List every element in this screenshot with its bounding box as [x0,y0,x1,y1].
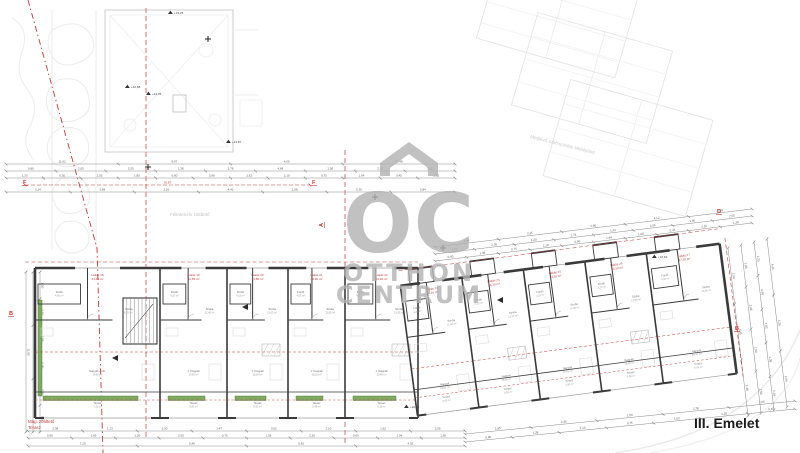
shaft-hatch-line [268,344,274,356]
room-area: 18,90 m² [253,374,263,377]
dim-number: 6,07 [171,160,177,164]
shaft-hatch-line [392,344,398,356]
room-name: Terasz [190,401,199,405]
room-name: Terasz [378,401,387,405]
room-name: Fürdő [297,290,305,294]
dim-number: 1,94 [606,235,613,240]
partition-wall [469,324,507,329]
room-area: 5,60 m² [253,406,262,409]
unit-red-line [411,361,472,369]
dim-number: 4,68 [277,167,283,171]
room-name: Fürdő [237,290,245,294]
room-name: Fürdő [56,290,64,294]
shaft-hatch-line [274,344,280,356]
dim-number: 1,08 [638,232,645,237]
room-area: 4,20 m² [413,310,422,314]
dim-number: 1,50 [40,282,44,288]
level-mark-value: +10,63 [658,255,668,259]
dim-number: 1,38 [479,251,486,256]
terrace-edge [531,399,540,400]
floorplan-sheet: Félintenzív zöldtető Meglévő s [0,0,800,453]
dim-number: 2,36 [491,242,498,247]
room-area: 13,60 m² [701,289,711,293]
exterior-wall [696,244,719,247]
dim-number: 1,50 [754,347,759,354]
roof-terrace-block [105,10,262,152]
furniture [142,364,154,380]
section-marker-f: F [312,180,316,186]
room-name: 1. Nappali [187,369,200,373]
partition-wall [653,299,698,305]
dim-number: 2,10 [326,427,332,431]
apartment-unit: Lakás 2747,35 m²Fürdő4,55 m²Szoba13,60 m… [644,229,736,383]
dim-number: 2,10 [772,390,777,397]
furniture [660,311,673,320]
unit-area: 40,95 m² [311,277,323,281]
partition-wall [592,308,630,313]
terrace-rail [611,384,655,390]
dim-number: 4,12 [653,216,660,221]
furniture [209,364,221,380]
room-area: 19,65 m² [189,374,199,377]
terrace-note-line2: Terasz [28,425,41,430]
dim-number: 1,38 [532,430,539,435]
dim-number: 3,02 [271,427,277,431]
terrace-note: Mag. zöldtető Terasz [28,419,55,430]
dim-number: 2,55 [97,174,103,178]
unit-area: 42,65 m² [188,277,200,281]
dim-line [767,239,787,407]
furniture [414,343,427,352]
dim-number: 2,90 [162,427,168,431]
level-mark-icon [168,11,173,14]
dim-number: 0,75 [222,434,228,438]
furniture [166,328,178,336]
door-swing [376,314,382,320]
level-mark-value: +13,87 [232,140,242,144]
dim-number: 0,60 [353,434,359,438]
section-marker-b: B [9,311,13,317]
room-area: 12,50 m² [631,298,641,302]
level-mark-icon [404,405,409,408]
dim-number: 1,62 [610,228,617,233]
shaft-hatch-line [636,331,644,344]
room-area: 6,45 m² [694,366,703,370]
room-area: 4,20 m² [597,286,606,290]
garden-area [12,10,96,253]
partition-wall [407,332,445,337]
room-area: 5,90 m² [504,391,513,395]
exterior-wall [504,270,524,273]
level-mark-value: +10,43 [410,405,420,409]
dim-number: 1,38 [178,167,184,171]
room-name: Fürdő [171,290,179,294]
shaft-hatch-line [513,347,521,360]
level-mark-value: +12,88 [131,85,141,89]
dim-number: 0,30 [59,174,65,178]
room-area: 7,20 m² [93,406,102,409]
dim-number: 1,85 [689,218,696,223]
room-area: 12,05 m² [267,312,277,315]
dim-number: 11,95 [26,348,30,356]
dim-number: 1,94 [397,434,403,438]
exterior-wall [565,261,585,264]
room-area: 12,95 m² [394,312,404,315]
dim-number: 3,30 [777,320,782,327]
floorplan-canvas: Félintenzív zöldtető Meglévő s [0,0,800,453]
dim-number: 4,41 [228,188,234,192]
dim-number: 1,50 [627,413,634,418]
watermark-line2: CENTRUM [336,281,482,309]
unit-area: 47,35 m² [678,257,690,263]
dim-number: 0,75 [511,247,518,252]
level-mark-value: +13,05 [152,92,162,96]
entry-arrow [112,355,118,361]
dim-number: 4,92 [407,442,413,446]
dim-number: 1,30 [733,220,740,225]
dim-number: 2,36 [745,385,750,392]
furniture [537,327,550,336]
dim-number: 6,81 [298,442,304,446]
dim-number: 1,50 [327,167,333,171]
dim-number: 2,10 [580,426,587,431]
watermark-logo: OC [343,177,475,272]
dim-number: 2,05 [650,223,657,228]
dim-number: 0,75 [627,421,634,426]
room-area: 20,40 m² [377,374,387,377]
dim-number: 1,38 [265,434,271,438]
room-area: 5,90 m² [627,374,636,378]
dim-number: 2,78 [693,406,700,411]
dim-number: 2,90 [590,223,597,228]
dim-number: 2,10 [284,174,290,178]
terrace-edge [417,414,426,415]
dim-number: 1,62 [674,416,681,421]
dim-number: 2,38 [52,427,58,431]
entry-arrow [497,297,503,303]
unit-red-line [596,337,657,345]
terrace-rail [426,409,470,415]
dim-number: 7,23 [80,442,86,446]
dim-number: 2,05 [178,434,184,438]
dim-number: 5,24 [35,188,41,192]
dim-number: 2,78 [570,233,577,238]
terrace-edge [663,382,672,383]
dim-number: 3,99 [209,174,215,178]
apartment-unit: Lakás 1942,65 m²Fürdő4,20 m²Szoba12,40 m… [160,268,227,418]
section-marker-a: A [319,223,325,227]
room-area: 24,80 m² [93,374,103,377]
terrace-edge [602,390,611,391]
dim-number: 1,85 [744,263,749,270]
room-area: 4,55 m² [661,277,670,281]
room-name: Nappali + étk. [89,369,106,373]
dim-number: 2,10 [543,243,550,248]
neighbor-label: Meglévő szomszédos lakóépület [530,134,596,155]
floor-title: III. Emelet [694,415,760,431]
dim-number: 1,50 [440,434,446,438]
terrace-edge [654,383,663,384]
dim-number: 30,87 [164,181,172,185]
partition-wall [530,316,568,321]
dim-number: 0,45 [669,228,676,233]
level-mark-icon [226,140,231,143]
dim-number: 2,90 [731,273,736,280]
dim-number: 0,60 [171,174,177,178]
door-swing [312,314,318,320]
terrace-edge [479,406,488,407]
room-name: 1. Nappali [375,369,388,373]
unit-area: 43,10 m² [549,274,561,280]
room-area: 4,20 m² [536,294,545,298]
room-area: 12,50 m² [508,314,518,318]
room-area: 11,80 m² [325,312,335,315]
dim-number: 4,41 [770,264,775,271]
dim-number: 1,85 [134,174,140,178]
dim-number: 0,90 [760,289,765,296]
dim-number: 2,26 [163,188,169,192]
dim-number: 3,25 [128,167,134,171]
room-name: 1. Nappali [310,369,323,373]
room-name: Terasz [94,401,103,405]
room-area: 18,20 m² [312,374,322,377]
apartment-unit: Lakás 2543,10 m²Fürdő4,20 m²Szoba12,50 m… [521,247,602,400]
unit-area: 43,10 m² [488,282,500,288]
dim-number: 3,68 [99,188,105,192]
room-name: Terasz [254,401,263,405]
dim-number: 1,08 [292,188,298,192]
dim-number: 1,62 [246,174,252,178]
apartment-unit: Lakás 1861,40 m²Fürdő4,60 m²1. Szoba14,2… [35,268,160,418]
dim-number: 1,62 [380,427,386,431]
dim-number: 2,36 [561,419,568,424]
room-area: 4,20 m² [170,295,179,298]
unit-red-line [657,327,730,337]
dim-number: 1,20 [756,255,761,262]
neighbor-buildings [476,0,712,216]
room-area: 6,10 m² [377,406,386,409]
dim-number: 3,99 [784,376,789,383]
dim-number: 5,48 [189,442,195,446]
room-area: 5,80 m² [189,406,198,409]
unit-area: 61,40 m² [92,277,104,281]
dim-number: 1,38 [768,356,773,363]
door-swing [253,314,259,320]
furniture [599,319,612,328]
dim-number: 0,75 [321,174,327,178]
room-name: Szoba [268,307,276,311]
unit-area: 41,80 m² [252,277,264,281]
level-mark-value: +13,25 [174,11,184,15]
terrace-rail [672,375,728,382]
dim-number: 1,20 [22,174,28,178]
dim-number: 2,55 [759,389,764,396]
room-area: 5,90 m² [565,383,574,387]
planter-box [296,396,323,401]
unit-red-line [473,353,534,361]
dim-number: 2,05 [749,305,754,312]
roof-label: Félintenzív zöldtető [170,212,210,217]
level-mark-icon [652,255,657,258]
dim-number: 1,13 [107,427,113,431]
terrace-edge [540,398,549,399]
dim-number: 2,55 [435,427,441,431]
dim-number: 1,47 [216,427,222,431]
dim-number: 0,90 [28,167,34,171]
room-name: Szoba [206,307,214,311]
furniture [351,328,363,336]
shaft-hatch-line [398,344,404,356]
room-area: 4,15 m² [236,295,245,298]
terrace-note-line1: Mag. zöldtető [28,419,55,424]
dim-number: 2,05 [78,167,84,171]
dim-number: 0,90 [485,435,492,440]
unit-red-line [534,345,595,353]
room-name: 1. Nappali [251,369,264,373]
dim-number: 4,05 [284,160,290,164]
room-area: 4,05 m² [296,295,305,298]
room-area: 12,50 m² [447,322,457,326]
room-area: 12,50 m² [570,306,580,310]
room-area: 14,25 m² [123,312,133,315]
dim-number: 2,26 [701,224,708,229]
room-area: 5,90 m² [442,399,451,403]
furniture [270,364,282,380]
terrace-edge [593,391,602,392]
shaft-hatch-line [262,344,268,356]
dim-number: 0,90 [47,434,53,438]
dim-number: 1,85 [91,434,97,438]
door-swing [188,314,194,320]
watermark: OC OTTHON CENTRUM [336,142,482,309]
furniture [327,364,339,380]
room-area: 4,60 m² [55,295,64,298]
furniture [294,328,306,336]
section-marker-d: D [717,209,721,215]
dim-number: 3,35 [527,231,534,236]
terrace-rail [549,393,593,399]
level-mark-icon [146,92,151,95]
door-swing [88,314,94,320]
apartment-unit: Lakás 2041,80 m²Fürdő4,15 m²Szoba12,05 m… [227,268,288,418]
unit-area: 43,10 m² [611,266,623,272]
dim-number: 11,62 [58,160,66,164]
room-name: Szoba [326,307,334,311]
dim-number: 0,60 [574,239,581,244]
dim-number: 1,20 [134,434,140,438]
terrace-rail [488,401,532,407]
terrace-edge [728,374,737,375]
section-marker-b: B [735,326,739,332]
planter-box-vertical [38,300,42,396]
room-name: Terasz [313,401,322,405]
dim-number: 1,85 [495,426,502,431]
room-area: 12,40 m² [205,312,215,315]
terrace-edge [470,408,479,409]
dim-number: 1,62 [764,323,769,330]
furniture [476,335,489,344]
apartment-unit: Lakás 2643,10 m²Fürdő4,20 m²Szoba12,50 m… [583,239,664,392]
room-name: 1. Szoba [122,307,133,311]
dim-number: 2,55 [729,214,736,219]
room-area: 5,45 m² [312,406,321,409]
entry-arrow [242,304,248,310]
dim-number: 1,20 [531,237,538,242]
dim-number: 2,26 [309,434,315,438]
furniture [233,328,245,336]
exterior-wall [627,253,647,256]
dim-number: 2,78 [228,167,234,171]
level-mark-icon [125,85,130,88]
